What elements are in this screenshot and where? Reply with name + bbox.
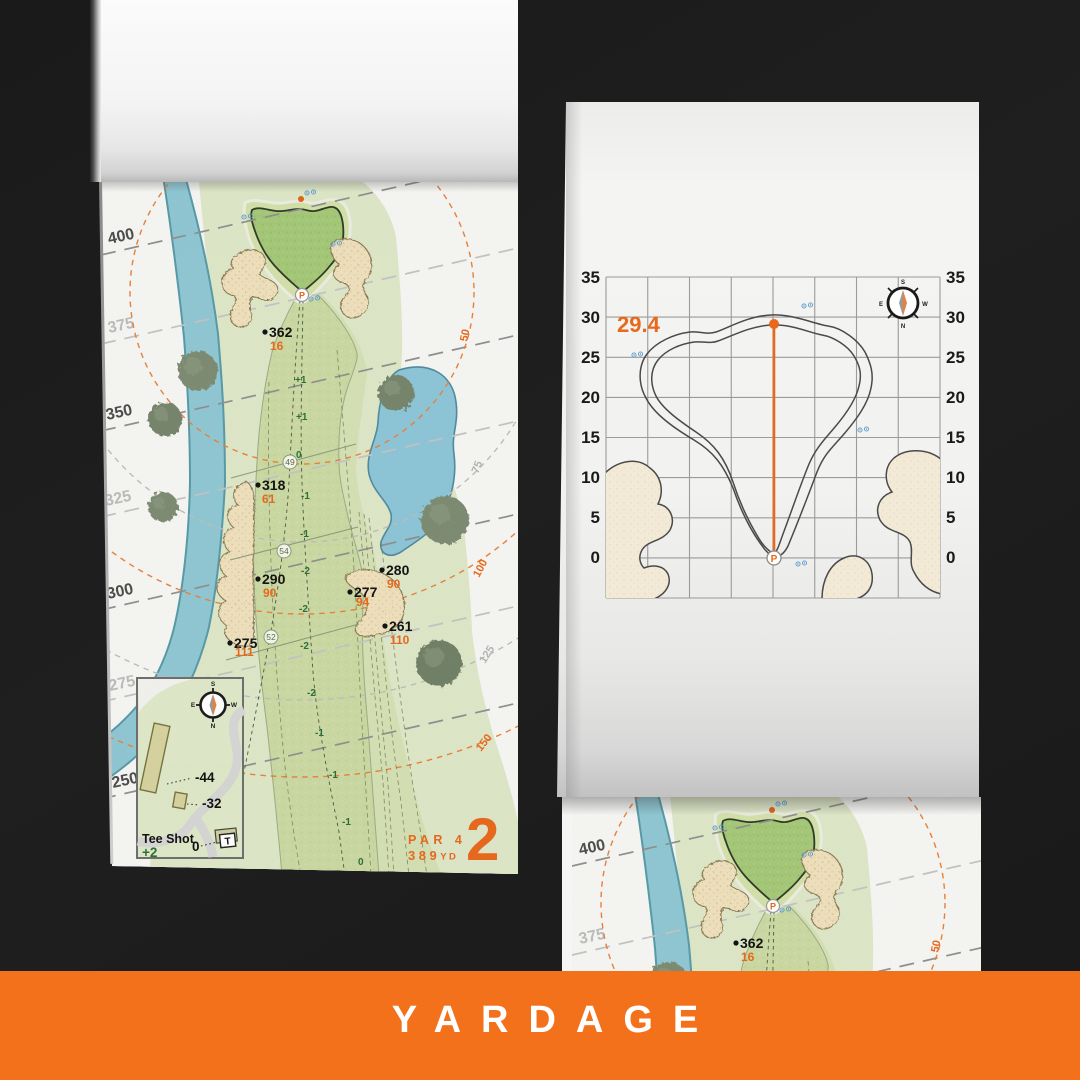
svg-text:29.4: 29.4 (617, 312, 661, 337)
svg-text:P: P (771, 554, 778, 565)
svg-text:20: 20 (581, 388, 600, 407)
svg-text:E: E (879, 302, 883, 308)
svg-text:20: 20 (946, 388, 965, 407)
svg-text:W: W (922, 302, 928, 308)
svg-text:25: 25 (946, 348, 965, 367)
svg-text:30: 30 (581, 308, 600, 327)
svg-text:5: 5 (946, 508, 955, 527)
svg-text:35: 35 (581, 268, 600, 287)
svg-text:30: 30 (946, 308, 965, 327)
svg-text:0: 0 (591, 548, 600, 567)
svg-text:35: 35 (946, 268, 965, 287)
svg-text:10: 10 (581, 468, 600, 487)
svg-text:N: N (901, 324, 905, 330)
svg-text:15: 15 (581, 428, 600, 447)
svg-text:5: 5 (591, 508, 600, 527)
svg-text:25: 25 (581, 348, 600, 367)
svg-text:0: 0 (946, 548, 955, 567)
svg-text:15: 15 (946, 428, 965, 447)
svg-text:10: 10 (946, 468, 965, 487)
svg-text:S: S (901, 280, 905, 286)
